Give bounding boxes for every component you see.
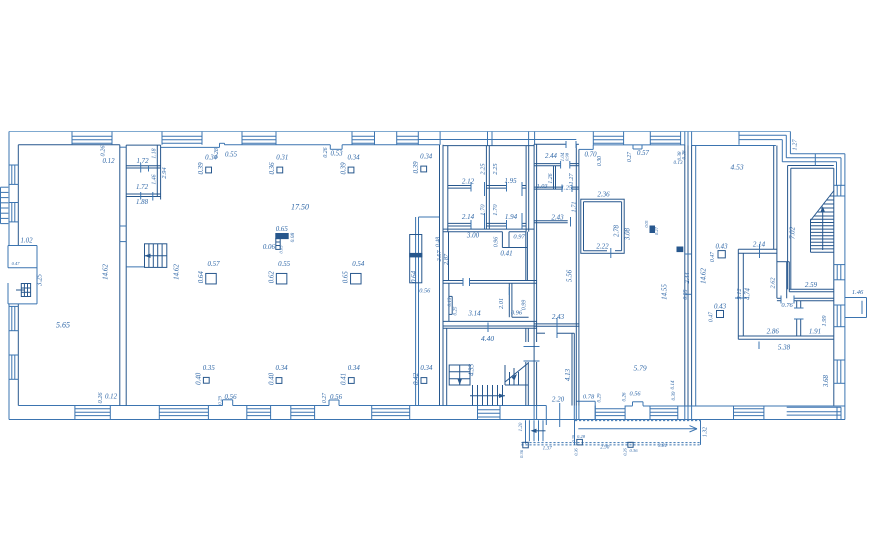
svg-text:0.40: 0.40 <box>268 372 275 385</box>
svg-text:0.78: 0.78 <box>583 394 595 401</box>
svg-text:0.36: 0.36 <box>574 447 579 455</box>
svg-text:2.22: 2.22 <box>596 243 609 251</box>
svg-text:0.26: 0.26 <box>97 392 104 404</box>
svg-text:0.55: 0.55 <box>278 261 291 268</box>
svg-text:0.47: 0.47 <box>709 251 716 262</box>
svg-text:0.34: 0.34 <box>347 155 360 162</box>
svg-text:14.62: 14.62 <box>102 264 110 280</box>
svg-text:0.30: 0.30 <box>597 156 603 166</box>
svg-text:2.90: 2.90 <box>600 445 609 451</box>
svg-text:2.62: 2.62 <box>770 277 777 289</box>
svg-text:0.41: 0.41 <box>341 373 348 385</box>
svg-text:0.34: 0.34 <box>275 365 288 372</box>
svg-text:2.14: 2.14 <box>462 213 475 221</box>
svg-text:1.32: 1.32 <box>703 427 709 437</box>
svg-text:0.26: 0.26 <box>623 447 628 455</box>
svg-text:5.56: 5.56 <box>566 269 574 282</box>
svg-text:0.36: 0.36 <box>629 448 638 453</box>
svg-text:4.74: 4.74 <box>745 287 752 299</box>
svg-text:0.25: 0.25 <box>453 306 459 315</box>
svg-text:0.62: 0.62 <box>269 271 276 284</box>
svg-text:0.13: 0.13 <box>673 160 682 166</box>
svg-text:0.13: 0.13 <box>447 297 453 306</box>
svg-text:0.27: 0.27 <box>654 226 659 235</box>
svg-text:2.57: 2.57 <box>436 250 443 262</box>
svg-text:3.08: 3.08 <box>625 227 632 240</box>
svg-text:0.41: 0.41 <box>500 250 512 258</box>
svg-text:4.40: 4.40 <box>481 334 494 343</box>
svg-text:17.50: 17.50 <box>291 203 309 212</box>
svg-text:1.95: 1.95 <box>504 177 517 185</box>
svg-text:5.38: 5.38 <box>778 344 791 352</box>
svg-text:2.44: 2.44 <box>545 153 557 160</box>
svg-text:5.65: 5.65 <box>56 321 70 330</box>
svg-text:1.71: 1.71 <box>571 201 578 212</box>
svg-text:1.25: 1.25 <box>561 185 572 192</box>
svg-text:3.81: 3.81 <box>658 443 667 449</box>
svg-text:2.36: 2.36 <box>597 191 610 199</box>
svg-text:1.27: 1.27 <box>792 139 799 151</box>
svg-text:1.27: 1.27 <box>568 173 575 185</box>
svg-text:0.65: 0.65 <box>343 271 350 284</box>
svg-text:0.36: 0.36 <box>269 162 276 175</box>
svg-text:0.57: 0.57 <box>637 150 649 157</box>
svg-text:0.99: 0.99 <box>522 300 528 311</box>
svg-text:0.64: 0.64 <box>411 270 418 283</box>
svg-text:1.99: 1.99 <box>821 315 828 327</box>
svg-text:0.28: 0.28 <box>577 434 586 439</box>
svg-text:2.25: 2.25 <box>492 163 499 175</box>
svg-text:1.37: 1.37 <box>543 446 552 452</box>
svg-text:0.43: 0.43 <box>714 304 727 311</box>
svg-text:0.55: 0.55 <box>225 152 238 159</box>
svg-text:0.96: 0.96 <box>494 237 500 248</box>
svg-text:0.26: 0.26 <box>622 392 628 401</box>
svg-text:0.70: 0.70 <box>584 152 597 159</box>
svg-text:0.39: 0.39 <box>413 161 420 174</box>
svg-text:7.02: 7.02 <box>789 226 797 239</box>
svg-text:0.27: 0.27 <box>627 151 633 162</box>
svg-text:0.56: 0.56 <box>419 288 431 295</box>
svg-text:0.54: 0.54 <box>352 261 365 268</box>
svg-text:0.98: 0.98 <box>565 152 570 161</box>
svg-text:0.05: 0.05 <box>279 245 284 254</box>
svg-text:2.43: 2.43 <box>551 214 564 222</box>
svg-text:3.14: 3.14 <box>467 310 481 318</box>
svg-text:2.20: 2.20 <box>552 396 565 404</box>
svg-text:1.26: 1.26 <box>548 173 554 183</box>
svg-text:0.26: 0.26 <box>323 147 329 157</box>
svg-text:3.25: 3.25 <box>37 273 44 286</box>
svg-text:2.59: 2.59 <box>805 281 818 289</box>
svg-text:0.26: 0.26 <box>100 145 107 157</box>
svg-text:0.12: 0.12 <box>105 394 118 401</box>
svg-text:3.00: 3.00 <box>466 232 480 240</box>
svg-text:2.78: 2.78 <box>614 224 621 236</box>
svg-text:0.34: 0.34 <box>205 155 218 162</box>
svg-text:2.12: 2.12 <box>462 178 475 186</box>
svg-text:0.27: 0.27 <box>322 392 328 403</box>
svg-text:0.39: 0.39 <box>198 162 205 175</box>
svg-text:2.01: 2.01 <box>498 298 505 309</box>
svg-text:14.62: 14.62 <box>173 264 181 280</box>
svg-text:1.88: 1.88 <box>136 199 149 206</box>
svg-text:0.34: 0.34 <box>420 154 433 161</box>
svg-text:1.94: 1.94 <box>505 213 518 221</box>
svg-text:4.53: 4.53 <box>730 163 743 172</box>
svg-text:0.97: 0.97 <box>513 234 525 241</box>
svg-text:0.65: 0.65 <box>276 226 289 233</box>
svg-text:0.39: 0.39 <box>671 391 677 400</box>
svg-text:0.34: 0.34 <box>348 365 361 372</box>
svg-text:0.76: 0.76 <box>781 302 793 309</box>
svg-text:14.55: 14.55 <box>661 284 669 300</box>
svg-text:5.12: 5.12 <box>736 288 743 300</box>
svg-text:0.06: 0.06 <box>263 244 276 251</box>
svg-text:0.12: 0.12 <box>102 158 115 165</box>
svg-text:0.29: 0.29 <box>597 393 603 402</box>
svg-text:2.44: 2.44 <box>684 272 691 283</box>
svg-text:0.56: 0.56 <box>224 394 237 401</box>
svg-text:0.47: 0.47 <box>12 261 21 266</box>
svg-text:0.53: 0.53 <box>330 151 343 158</box>
svg-text:4.13: 4.13 <box>564 368 572 381</box>
svg-text:2.43: 2.43 <box>552 313 565 321</box>
svg-text:1.20: 1.20 <box>519 422 524 431</box>
svg-text:0.29: 0.29 <box>571 434 576 442</box>
svg-text:0.29: 0.29 <box>219 396 224 405</box>
svg-text:2.25: 2.25 <box>480 163 487 175</box>
svg-text:0.56: 0.56 <box>629 391 641 398</box>
svg-text:0.42: 0.42 <box>413 372 420 385</box>
svg-text:1.70: 1.70 <box>480 204 487 216</box>
svg-text:1.70: 1.70 <box>492 204 499 216</box>
svg-text:1.03: 1.03 <box>536 183 547 190</box>
svg-text:0.57: 0.57 <box>207 261 220 268</box>
svg-text:0.14: 0.14 <box>669 380 676 389</box>
svg-text:0.35: 0.35 <box>203 365 216 372</box>
svg-text:0.39: 0.39 <box>340 162 347 175</box>
svg-text:1.72: 1.72 <box>136 184 149 191</box>
svg-text:1.72: 1.72 <box>136 158 149 165</box>
svg-text:0.31: 0.31 <box>276 155 288 162</box>
svg-text:0.08: 0.08 <box>290 232 296 242</box>
svg-text:2.94: 2.94 <box>161 167 168 179</box>
svg-text:0.43: 0.43 <box>715 244 728 251</box>
svg-text:0.55: 0.55 <box>683 289 689 299</box>
svg-text:1.46: 1.46 <box>150 174 157 184</box>
svg-text:1.18: 1.18 <box>151 148 157 158</box>
svg-text:0.64: 0.64 <box>198 271 205 284</box>
svg-text:0.36: 0.36 <box>519 449 524 458</box>
svg-text:14.62: 14.62 <box>700 268 708 284</box>
svg-text:0.56: 0.56 <box>330 394 343 401</box>
svg-text:2.86: 2.86 <box>767 328 780 336</box>
svg-text:3.68: 3.68 <box>823 374 830 387</box>
svg-text:0.47: 0.47 <box>708 311 715 322</box>
svg-text:0.48: 0.48 <box>435 237 442 247</box>
svg-text:0.34: 0.34 <box>420 365 433 372</box>
svg-text:2.87: 2.87 <box>443 253 450 265</box>
svg-text:1.02: 1.02 <box>20 238 33 245</box>
svg-text:0.40: 0.40 <box>196 372 203 385</box>
svg-text:5.79: 5.79 <box>633 364 646 373</box>
svg-text:1.91: 1.91 <box>809 328 821 336</box>
svg-text:1.46: 1.46 <box>852 289 864 296</box>
svg-text:0.05: 0.05 <box>644 221 649 228</box>
